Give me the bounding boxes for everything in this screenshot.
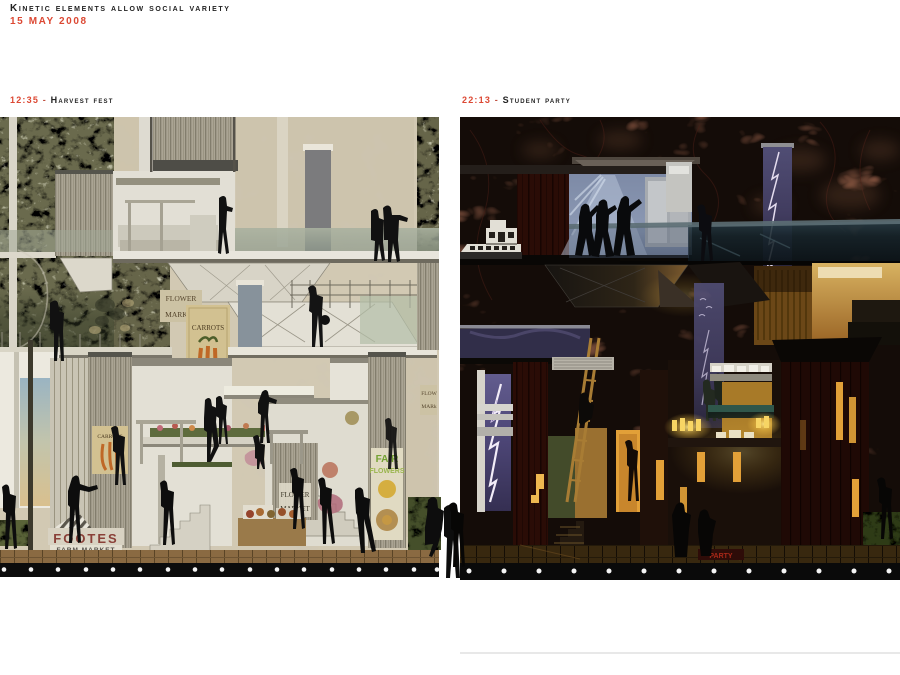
svg-text:FLOW: FLOW	[421, 391, 437, 397]
svg-text:FOOTES: FOOTES	[53, 531, 118, 546]
svg-text:FLOWER: FLOWER	[166, 294, 197, 303]
svg-text:PARTY: PARTY	[709, 553, 733, 560]
svg-text:MARk: MARk	[421, 404, 437, 410]
svg-text:FLOWERS: FLOWERS	[370, 468, 405, 475]
svg-text:CARROTS: CARROTS	[192, 324, 224, 332]
